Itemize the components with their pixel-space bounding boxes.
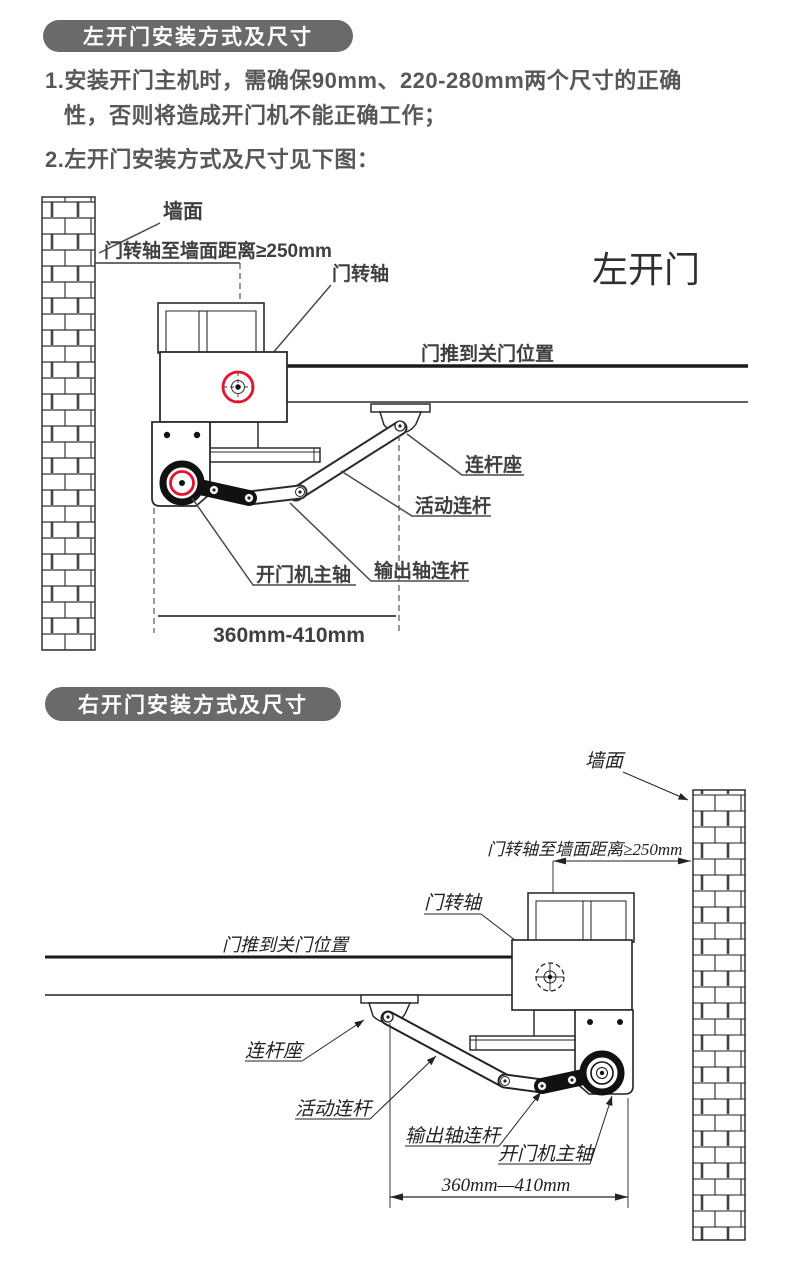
left-section-badge: 左开门安装方式及尺寸 <box>43 20 353 52</box>
motor-hub <box>583 1054 621 1092</box>
door-pivot-marker <box>536 963 564 991</box>
wall-label-group: 墙面 <box>585 751 688 800</box>
output-rod-label: 输出轴连杆 <box>374 559 469 582</box>
movable-rod-label: 活动连杆 <box>415 494 491 517</box>
rod-seat-leader <box>302 1020 364 1061</box>
wall-label: 墙面 <box>585 751 626 772</box>
gate-post <box>528 893 634 942</box>
brick-wall <box>42 197 95 650</box>
gate-post-lower <box>207 422 320 462</box>
dimension-label: 360mm—410mm <box>441 1175 571 1196</box>
output-rod-leader <box>499 1092 541 1146</box>
main-shaft-label: 开门机主轴 <box>256 563 351 586</box>
motor-hub <box>163 464 201 502</box>
left-door-diagram: 墙面 门转轴至墙面距离≥250mm 门转轴 左开门 <box>0 185 790 665</box>
instruction-2: 2.左开门安装方式及尺寸见下图： <box>45 142 379 174</box>
gate-post <box>158 303 264 353</box>
main-shaft-leader <box>590 1096 612 1164</box>
brick-wall <box>693 790 745 1240</box>
pivot-distance-label: 门转轴至墙面距离≥250mm <box>487 840 682 859</box>
right-section-badge: 右开门安装方式及尺寸 <box>45 687 341 721</box>
main-shaft-label: 开门机主轴 <box>498 1144 595 1165</box>
instruction-1-line-2: 性，否则将造成开门机不能正确工作； <box>64 98 447 130</box>
diagram-title: 左开门 <box>592 249 700 290</box>
rod-seat-label: 连杆座 <box>465 453 522 476</box>
machine-box <box>512 940 632 1010</box>
pivot-distance-label: 门转轴至墙面距离≥250mm <box>104 239 332 262</box>
wall-label: 墙面 <box>163 199 203 223</box>
instruction-1-line-1: 1.安装开门主机时，需确保90mm、220-280mm两个尺寸的正确 <box>45 63 682 95</box>
right-section-badge-label: 右开门安装方式及尺寸 <box>78 689 308 719</box>
page: 左开门安装方式及尺寸 1.安装开门主机时，需确保90mm、220-280mm两个… <box>0 0 790 1264</box>
dimension-label: 360mm-410mm <box>213 624 365 647</box>
right-door-diagram: 墙面 门转轴至墙面距离≥250mm 门转轴 <box>0 730 790 1264</box>
wall-leader-line <box>623 772 688 800</box>
door-closed-label: 门推到关门位置 <box>222 935 350 955</box>
door-pivot-label: 门转轴 <box>424 893 483 914</box>
movable-rod-leader <box>370 1056 436 1119</box>
door-closed-label: 门推到关门位置 <box>421 342 554 365</box>
door-pivot-label: 门转轴 <box>332 262 389 285</box>
left-section-badge-label: 左开门安装方式及尺寸 <box>83 21 313 51</box>
door-panel <box>287 366 748 402</box>
gate-post-lower <box>470 1010 583 1050</box>
door-panel <box>45 957 512 995</box>
output-rod-label: 输出轴连杆 <box>405 1125 503 1147</box>
rod-seat-label: 连杆座 <box>245 1040 305 1062</box>
movable-rod-label: 活动连杆 <box>295 1099 374 1120</box>
